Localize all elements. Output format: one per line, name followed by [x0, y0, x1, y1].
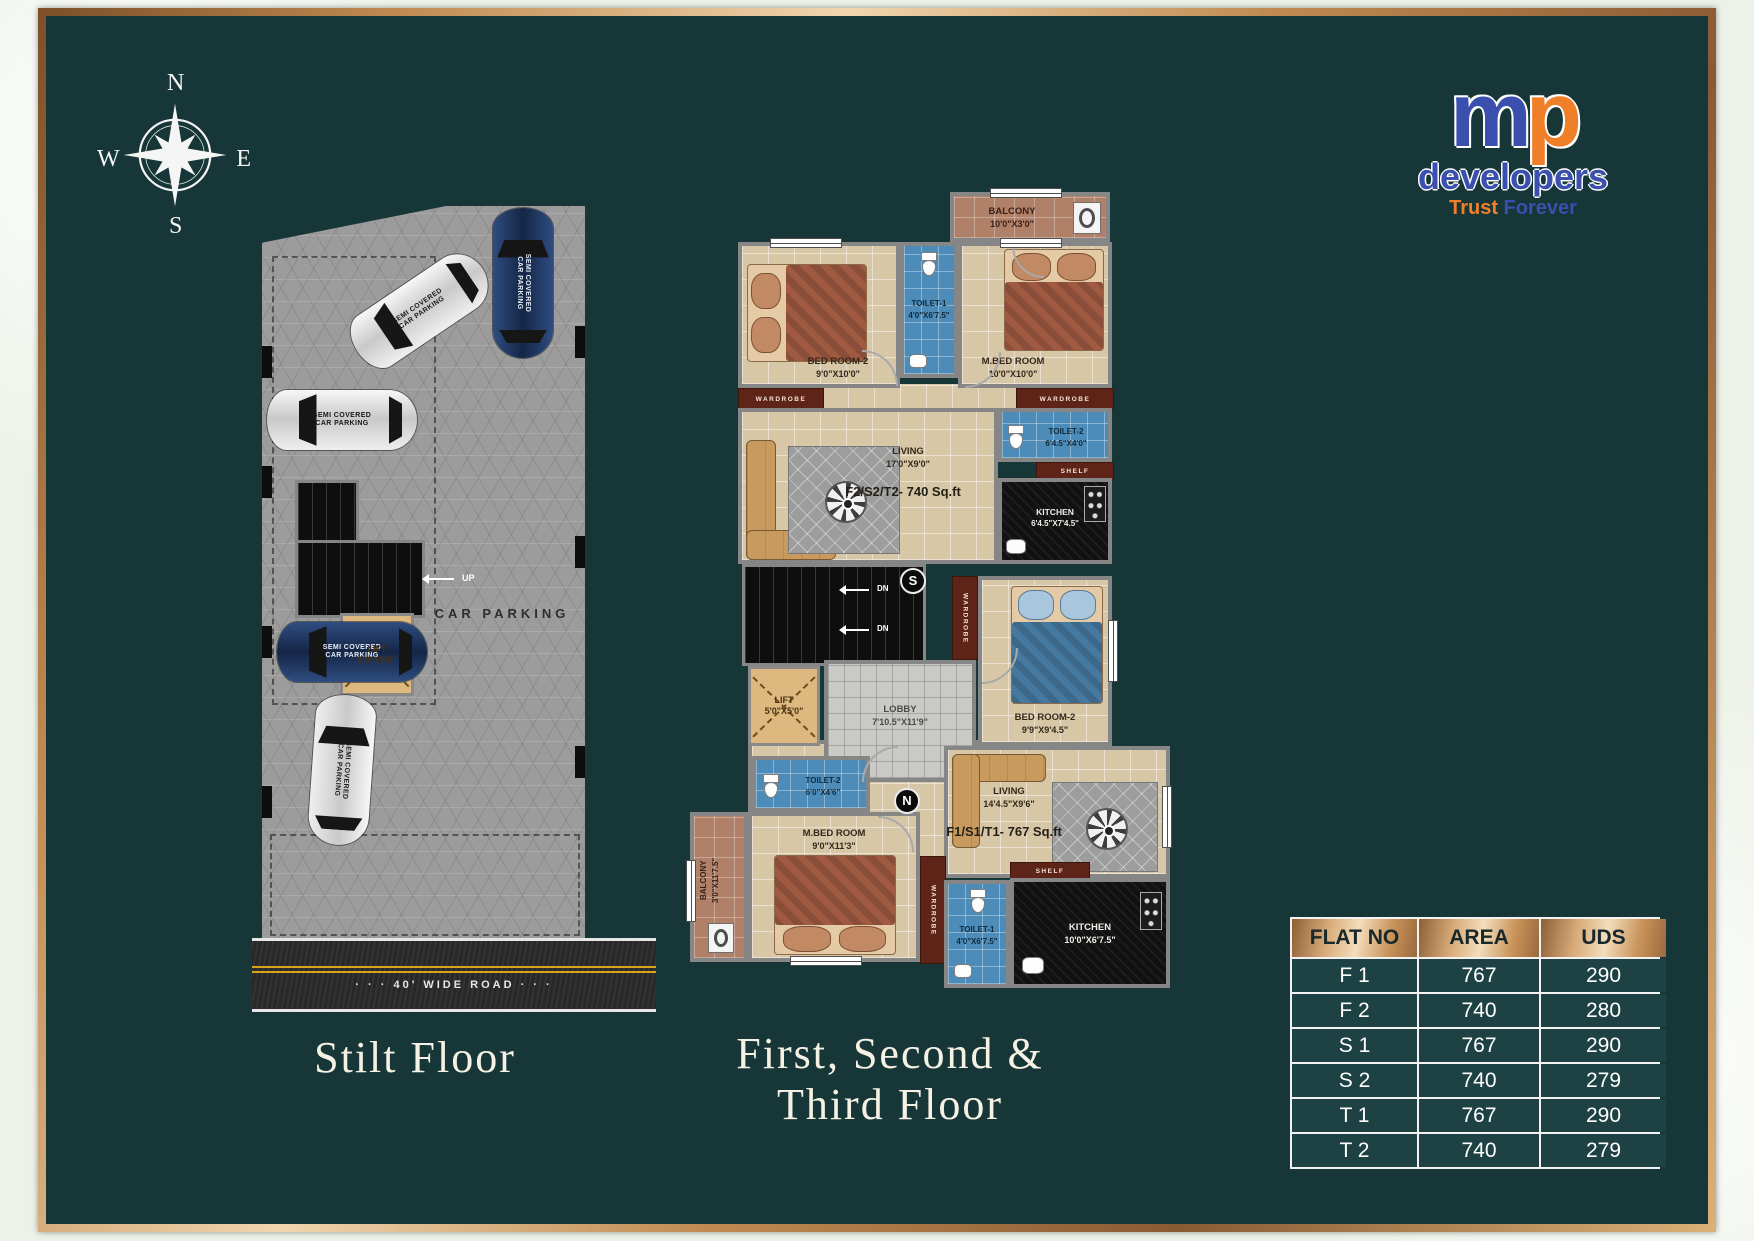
plan-lift-label: LIFT5'0"X5'0": [751, 695, 817, 717]
table-cell-flat: F 1: [1292, 959, 1417, 992]
table-cell-area: 767: [1419, 1099, 1539, 1132]
bed-pillow: [783, 926, 831, 952]
table-cell-uds: 290: [1541, 959, 1666, 992]
plan-staircase: DN DN: [742, 564, 926, 666]
bed-blanket: [1005, 282, 1103, 350]
unit-area-label-lower: F1/S1/T1- 767 Sq.ft: [938, 824, 1070, 839]
table-cell-uds: 279: [1541, 1064, 1666, 1097]
toilet-icon: [970, 889, 986, 913]
window: [990, 188, 1062, 198]
toilet-icon: [921, 252, 937, 276]
ceiling-fan-icon: [1086, 808, 1128, 850]
stilt-staircase-lower-flight: [295, 540, 425, 618]
room-label-bedroom2-lower: BED ROOM-29'9"X9'4.5": [982, 712, 1108, 736]
stilt-parking-area: UP LIFT5'0"X5'0" CAR PARKING SEMI COVERE…: [262, 206, 585, 940]
room-toilet1-lower: TOILET-14'0"X6'7.5": [944, 880, 1010, 988]
tagline-forever: Forever: [1504, 197, 1577, 219]
column-stub: [575, 746, 585, 778]
upper-floors-title-line2: Third Floor: [720, 1079, 1060, 1130]
room-label-toilet2-upper: TOILET-26'4.5"X4'0": [1026, 426, 1106, 450]
compass-west-label: W: [97, 146, 120, 173]
car-parking-label: CAR PARKING: [422, 606, 582, 621]
room-label-kitchen-upper: KITCHEN6'4.5"X7'4.5": [1002, 506, 1108, 530]
room-label-living-lower: LIVING14'4.5"X9'6": [948, 786, 1070, 810]
window: [790, 956, 862, 966]
bed-blanket: [775, 856, 895, 925]
window: [1000, 238, 1062, 248]
wardrobe-strip: WARDROBE: [952, 576, 978, 660]
room-label-balcony-upper: BALCONY10'0"X3'0": [954, 206, 1070, 230]
room-living-lower: LIVING14'4.5"X9'6" F1/S1/T1- 767 Sq.ft: [944, 746, 1170, 878]
column-stub: [262, 626, 272, 658]
parked-car: SEMI COVEREDCAR PARKING: [493, 208, 553, 358]
bed-pillow: [839, 926, 887, 952]
car-parking-type-label: SEMI COVEREDCAR PARKING: [267, 390, 417, 450]
compass-north-label: N: [167, 70, 184, 97]
bed-pillow: [1018, 590, 1054, 620]
bed-pillow: [1060, 590, 1096, 620]
window: [1108, 620, 1118, 682]
car-parking-type-label: SEMI COVEREDCAR PARKING: [307, 693, 377, 847]
table-cell-uds: 290: [1541, 1099, 1666, 1132]
table-cell-flat: S 2: [1292, 1064, 1417, 1097]
washing-machine-icon: [708, 923, 734, 953]
window: [1162, 786, 1172, 848]
sink-icon: [1006, 539, 1026, 554]
flats-table: FLAT NO AREA UDS F 1 767 290 F 2 740 280…: [1290, 917, 1660, 1169]
logo-letter-m: m: [1450, 64, 1526, 166]
room-kitchen-lower: KITCHEN10'0"X6'7.5": [1010, 878, 1170, 988]
bed-blanket: [786, 265, 866, 361]
bed-blanket: [1012, 622, 1102, 703]
table-cell-area: 740: [1419, 1064, 1539, 1097]
window: [686, 860, 696, 922]
table-cell-area: 740: [1419, 1134, 1539, 1167]
bed-pillow: [751, 317, 781, 354]
room-label-living-upper: LIVING17'0"X9'0": [822, 446, 994, 470]
room-label-toilet1-upper: TOILET-14'0"X6'7.5": [896, 298, 962, 322]
table-header-uds: UDS: [1541, 919, 1666, 957]
direction-badge-s: S: [900, 568, 926, 594]
dn-label: DN: [877, 624, 889, 633]
bed: [774, 855, 896, 955]
bed: [747, 264, 867, 362]
compass-east-label: E: [236, 146, 251, 173]
down-arrow-icon: [841, 589, 869, 591]
dn-label: DN: [877, 584, 889, 593]
plan-lift: LIFT5'0"X5'0": [748, 666, 820, 746]
room-kitchen-upper: KITCHEN6'4.5"X7'4.5": [998, 478, 1112, 564]
wardrobe-strip: WARDROBE: [738, 388, 824, 410]
table-cell-area: 740: [1419, 994, 1539, 1027]
upper-floors-title-line1: First, Second &: [720, 1028, 1060, 1079]
window: [770, 238, 842, 248]
table-header-flat-no: FLAT NO: [1292, 919, 1417, 957]
room-toilet2-upper: TOILET-26'4.5"X4'0": [998, 408, 1112, 462]
table-cell-uds: 280: [1541, 994, 1666, 1027]
bed-pillow: [1057, 253, 1096, 281]
table-cell-uds: 279: [1541, 1134, 1666, 1167]
brand-logo: mp developers Trust Forever: [1398, 72, 1628, 220]
table-header-area: AREA: [1419, 919, 1539, 957]
column-stub: [262, 346, 272, 378]
logo-tagline: Trust Forever: [1398, 196, 1628, 220]
direction-badge-n: N: [894, 788, 920, 814]
washing-machine-icon: [1073, 202, 1101, 234]
bed: [1011, 586, 1103, 704]
compass-star-icon: [120, 100, 230, 210]
up-label: UP: [462, 573, 475, 583]
unit-area-label-upper: F2/S2/T2- 740 Sq.ft: [812, 484, 994, 499]
room-toilet1-upper: TOILET-14'0"X6'7.5": [900, 242, 958, 378]
table-cell-flat: F 2: [1292, 994, 1417, 1027]
table-cell-flat: T 1: [1292, 1099, 1417, 1132]
column-stub: [262, 466, 272, 498]
column-stub: [262, 786, 272, 818]
toilet-icon: [763, 774, 779, 798]
room-label-lobby: LOBBY7'10.5"X11'9": [828, 704, 972, 728]
poster-canvas: N W E S mp developers Trust Forever UP: [0, 0, 1754, 1241]
table-cell-flat: S 1: [1292, 1029, 1417, 1062]
sink-icon: [954, 964, 972, 978]
table-cell-uds: 290: [1541, 1029, 1666, 1062]
table-cell-area: 767: [1419, 1029, 1539, 1062]
road-label: · · · 40' WIDE ROAD · · ·: [252, 979, 656, 991]
room-label-balcony-lower: BALCONY3'0"X11'7.5": [698, 830, 722, 930]
down-arrow-icon: [841, 629, 869, 631]
upper-floors-title: First, Second & Third Floor: [720, 1028, 1060, 1130]
room-label-toilet1-lower: TOILET-14'0"X6'7.5": [940, 924, 1014, 948]
car-parking-type-label: SEMI COVEREDCAR PARKING: [493, 208, 553, 358]
road-center-line: [252, 971, 656, 973]
wardrobe-strip: WARDROBE: [1016, 388, 1114, 410]
parked-car: SEMI COVEREDCAR PARKING: [307, 693, 377, 847]
logo-monogram: mp: [1398, 72, 1628, 158]
room-label-toilet2-lower: TOILET-26'0"X4'6": [782, 775, 864, 799]
parked-car: SEMI COVEREDCAR PARKING: [267, 390, 417, 450]
room-living-upper: LIVING17'0"X9'0" F2/S2/T2- 740 Sq.ft: [738, 408, 998, 564]
stilt-floor-title: Stilt Floor: [250, 1032, 580, 1083]
compass-rose: N W E S: [95, 70, 255, 240]
road-center-line: [252, 966, 656, 968]
up-arrow-icon: [424, 578, 454, 580]
logo-name: developers: [1398, 158, 1628, 196]
sink-icon: [909, 354, 927, 368]
compass-south-label: S: [169, 213, 182, 240]
table-cell-area: 767: [1419, 959, 1539, 992]
room-toilet2-lower: TOILET-26'0"X4'6": [752, 756, 870, 812]
road: · · · 40' WIDE ROAD · · ·: [252, 938, 656, 1012]
toilet-icon: [1008, 425, 1024, 449]
room-label-kitchen-lower: KITCHEN10'0"X6'7.5": [1014, 922, 1166, 946]
table-cell-flat: T 2: [1292, 1134, 1417, 1167]
logo-letter-p: p: [1526, 64, 1576, 166]
bed-pillow: [751, 273, 781, 310]
column-stub: [575, 536, 585, 568]
stilt-lift-label: LIFT5'0"X5'0": [343, 644, 411, 666]
tagline-trust: Trust: [1449, 197, 1498, 219]
room-balcony-upper: BALCONY10'0"X3'0": [950, 192, 1110, 242]
room-balcony-lower: BALCONY3'0"X11'7.5": [690, 812, 748, 962]
sink-icon: [1022, 957, 1044, 974]
column-stub: [575, 326, 585, 358]
parking-bay-outline: [270, 834, 580, 936]
